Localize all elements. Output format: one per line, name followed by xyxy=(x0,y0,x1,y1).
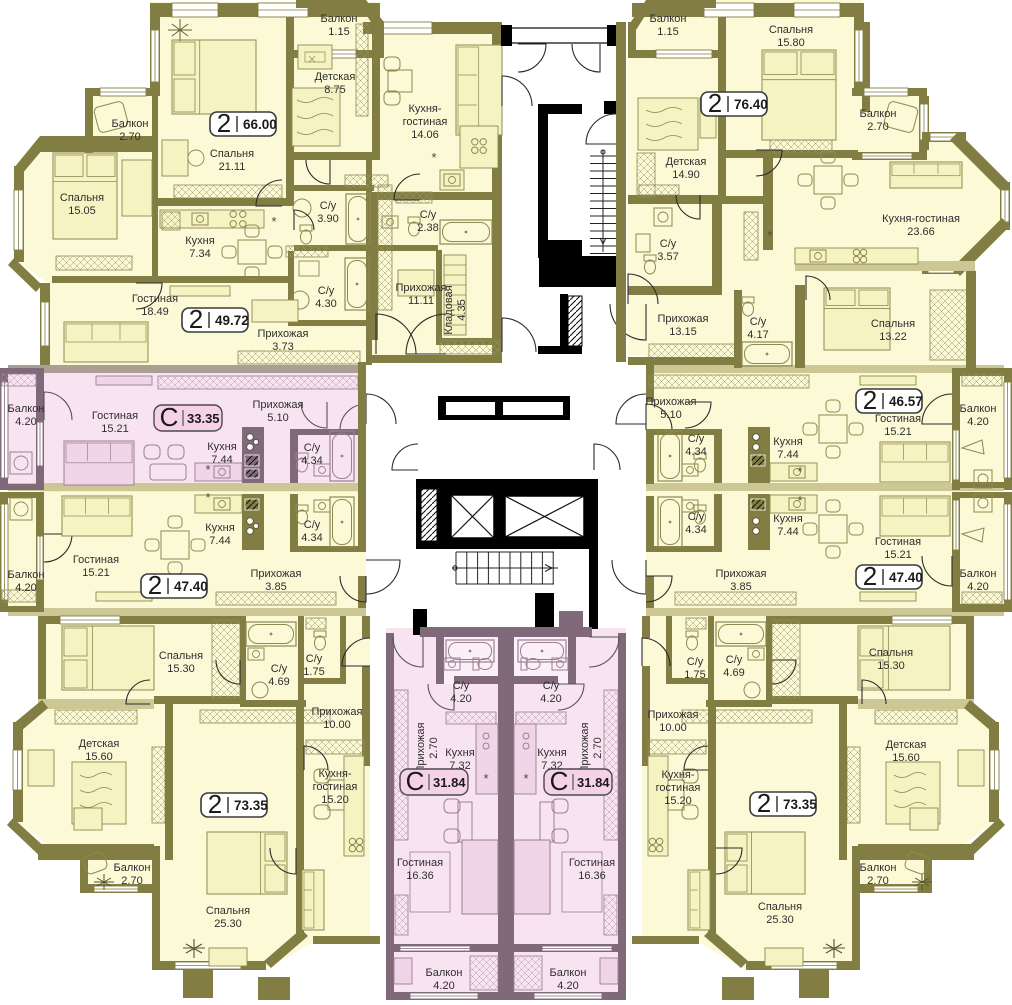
svg-text:Кухня7.32: Кухня7.32 xyxy=(445,747,474,772)
svg-text:C: C xyxy=(406,766,425,796)
svg-text:47.40: 47.40 xyxy=(889,570,923,585)
svg-text:31.84: 31.84 xyxy=(433,775,466,790)
svg-text:2: 2 xyxy=(217,108,231,138)
svg-text:С/у3.57: С/у3.57 xyxy=(657,238,678,263)
svg-text:73.35: 73.35 xyxy=(234,798,268,813)
svg-text:66.00: 66.00 xyxy=(243,117,277,132)
svg-text:*: * xyxy=(205,462,210,477)
svg-text:33.35: 33.35 xyxy=(187,411,220,426)
svg-text:С/у4.20: С/у4.20 xyxy=(450,680,471,705)
svg-text:С/у4.30: С/у4.30 xyxy=(315,285,336,310)
svg-text:2: 2 xyxy=(189,304,203,334)
svg-text:*: * xyxy=(271,214,276,229)
svg-text:*: * xyxy=(205,490,210,505)
svg-text:*: * xyxy=(483,771,488,786)
svg-text:С/у4.69: С/у4.69 xyxy=(268,663,289,688)
svg-text:2: 2 xyxy=(757,788,771,818)
svg-text:2: 2 xyxy=(208,789,222,819)
svg-text:*: * xyxy=(797,464,802,479)
svg-text:Кухня7.44: Кухня7.44 xyxy=(205,522,234,547)
svg-text:2: 2 xyxy=(863,385,877,415)
svg-text:С/у1.75: С/у1.75 xyxy=(303,653,324,678)
svg-text:*: * xyxy=(523,771,528,786)
svg-text:2: 2 xyxy=(863,561,877,591)
svg-text:С/у4.34: С/у4.34 xyxy=(301,442,322,467)
svg-text:47.40: 47.40 xyxy=(174,579,208,594)
svg-text:Кухня7.44: Кухня7.44 xyxy=(773,436,802,461)
svg-text:C: C xyxy=(160,402,179,432)
svg-text:С/у4.20: С/у4.20 xyxy=(540,680,561,705)
svg-text:*: * xyxy=(431,150,436,165)
svg-text:Кухня7.34: Кухня7.34 xyxy=(185,235,214,260)
svg-text:*: * xyxy=(767,228,772,243)
svg-text:Кухня7.44: Кухня7.44 xyxy=(207,441,236,466)
svg-text:31.84: 31.84 xyxy=(577,775,610,790)
svg-text:С/у4.34: С/у4.34 xyxy=(685,433,706,458)
svg-text:46.57: 46.57 xyxy=(889,394,923,409)
svg-text:С/у4.17: С/у4.17 xyxy=(747,316,768,341)
svg-text:73.35: 73.35 xyxy=(783,797,817,812)
svg-text:С/у4.34: С/у4.34 xyxy=(685,511,706,536)
svg-text:С/у2.38: С/у2.38 xyxy=(417,209,438,234)
svg-text:С/у1.75: С/у1.75 xyxy=(684,656,705,681)
svg-text:49.72: 49.72 xyxy=(215,313,249,328)
svg-text:Кухня7.44: Кухня7.44 xyxy=(773,513,802,538)
svg-text:С/у3.90: С/у3.90 xyxy=(317,200,338,225)
svg-text:2: 2 xyxy=(708,88,722,118)
svg-text:C: C xyxy=(550,766,569,796)
svg-text:С/у4.34: С/у4.34 xyxy=(301,519,322,544)
svg-text:76.40: 76.40 xyxy=(734,97,768,112)
svg-text:*: * xyxy=(797,493,802,508)
svg-text:С/у4.69: С/у4.69 xyxy=(723,654,744,679)
svg-text:2: 2 xyxy=(148,570,162,600)
